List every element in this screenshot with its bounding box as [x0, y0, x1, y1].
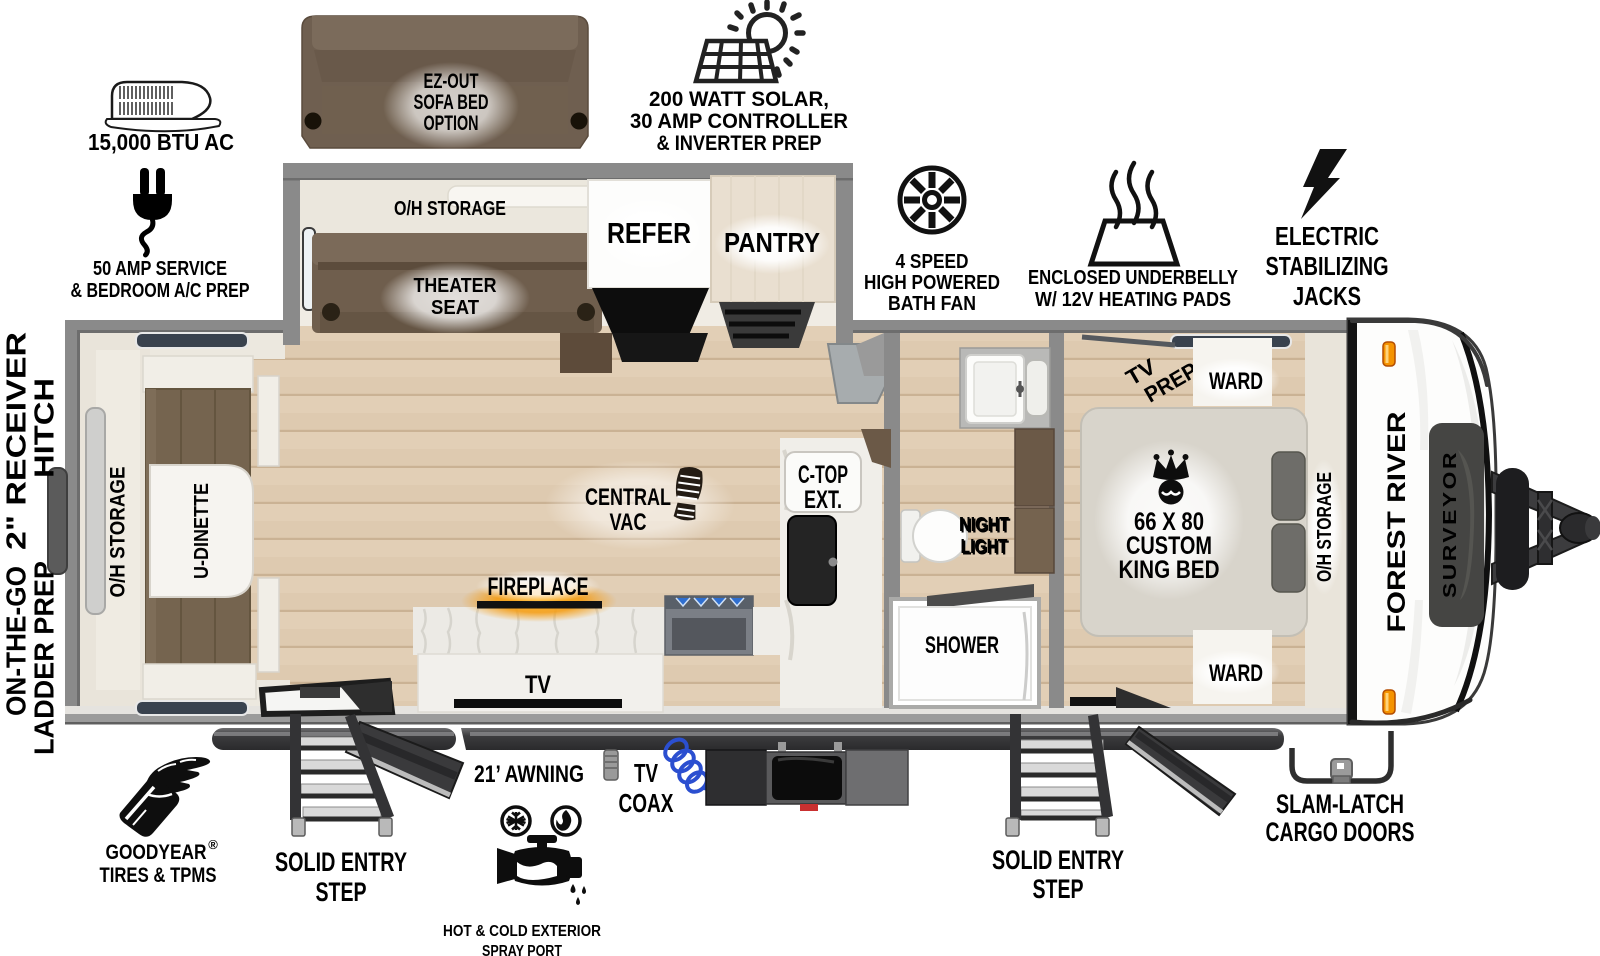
svg-text:30 AMP CONTROLLER: 30 AMP CONTROLLER [630, 110, 848, 133]
svg-text:SHOWER: SHOWER [925, 632, 999, 659]
svg-text:W/ 12V HEATING PADS: W/ 12V HEATING PADS [1035, 289, 1231, 311]
svg-text:STEP: STEP [316, 877, 367, 907]
svg-text:SOLID ENTRY: SOLID ENTRY [992, 845, 1124, 875]
svg-text:4 SPEED: 4 SPEED [896, 251, 969, 273]
svg-text:WARD: WARD [1209, 368, 1263, 395]
svg-text:& BEDROOM A/C PREP: & BEDROOM A/C PREP [71, 280, 250, 302]
svg-text:SLAM-LATCH: SLAM-LATCH [1276, 789, 1404, 819]
svg-text:O/H STORAGE: O/H STORAGE [394, 198, 506, 220]
svg-text:CENTRAL: CENTRAL [585, 484, 671, 511]
svg-text:21’ AWNING: 21’ AWNING [474, 761, 584, 788]
svg-text:SOFA BED: SOFA BED [414, 91, 489, 114]
svg-text:CARGO DOORS: CARGO DOORS [1266, 817, 1415, 847]
svg-text:SOLID ENTRY: SOLID ENTRY [275, 847, 407, 877]
svg-text:PANTRY: PANTRY [724, 227, 820, 258]
svg-text:EZ-OUT: EZ-OUT [424, 70, 479, 93]
svg-text:NIGHT: NIGHT [959, 514, 1009, 536]
svg-text:2" RECEIVER: 2" RECEIVER [1, 332, 32, 550]
svg-text:TV: TV [634, 758, 658, 788]
svg-text:ENCLOSED UNDERBELLY: ENCLOSED UNDERBELLY [1028, 267, 1239, 289]
svg-text:KING BED: KING BED [1119, 556, 1220, 584]
svg-text:50 AMP SERVICE: 50 AMP SERVICE [93, 258, 227, 280]
svg-text:O/H STORAGE: O/H STORAGE [1314, 472, 1336, 582]
svg-text:WARD: WARD [1209, 660, 1263, 687]
svg-text:VAC: VAC [610, 509, 647, 536]
svg-text:STABILIZING: STABILIZING [1266, 251, 1389, 281]
svg-text:TV: TV [525, 671, 551, 699]
svg-text:EXT.: EXT. [804, 486, 842, 514]
svg-text:COAX: COAX [619, 788, 674, 818]
svg-text:OPTION: OPTION [424, 112, 479, 135]
svg-text:THEATER: THEATER [414, 275, 497, 297]
svg-text:STEP: STEP [1033, 874, 1084, 904]
svg-text:& INVERTER PREP: & INVERTER PREP [657, 132, 822, 155]
svg-text:200 WATT SOLAR,: 200 WATT SOLAR, [649, 88, 829, 111]
svg-text:ELECTRIC: ELECTRIC [1275, 221, 1379, 251]
svg-text:ON-THE-GO: ON-THE-GO [1, 566, 32, 716]
svg-text:HIGH POWERED: HIGH POWERED [864, 272, 1000, 294]
svg-text:HITCH: HITCH [29, 378, 60, 478]
svg-text:®: ® [208, 837, 218, 852]
svg-text:HOT & COLD EXTERIOR: HOT & COLD EXTERIOR [443, 923, 601, 940]
svg-text:15,000 BTU AC: 15,000 BTU AC [88, 129, 234, 155]
svg-text:FOREST RIVER: FOREST RIVER [1383, 412, 1411, 633]
svg-text:U-DINETTE: U-DINETTE [191, 483, 213, 579]
svg-text:GOODYEAR: GOODYEAR [106, 841, 207, 864]
svg-text:TIRES & TPMS: TIRES & TPMS [100, 864, 217, 887]
svg-text:LIGHT: LIGHT [961, 536, 1008, 558]
svg-text:SPRAY PORT: SPRAY PORT [482, 943, 562, 956]
svg-text:LADDER PREP: LADDER PREP [29, 561, 60, 755]
svg-text:REFER: REFER [607, 218, 691, 250]
svg-text:JACKS: JACKS [1293, 281, 1361, 311]
svg-text:C-TOP: C-TOP [798, 461, 848, 489]
svg-text:SEAT: SEAT [431, 297, 479, 319]
svg-text:FIREPLACE: FIREPLACE [488, 573, 589, 601]
svg-text:BATH FAN: BATH FAN [888, 293, 976, 315]
svg-text:SURVEYOR: SURVEYOR [1440, 450, 1460, 598]
svg-text:O/H STORAGE: O/H STORAGE [107, 467, 130, 598]
